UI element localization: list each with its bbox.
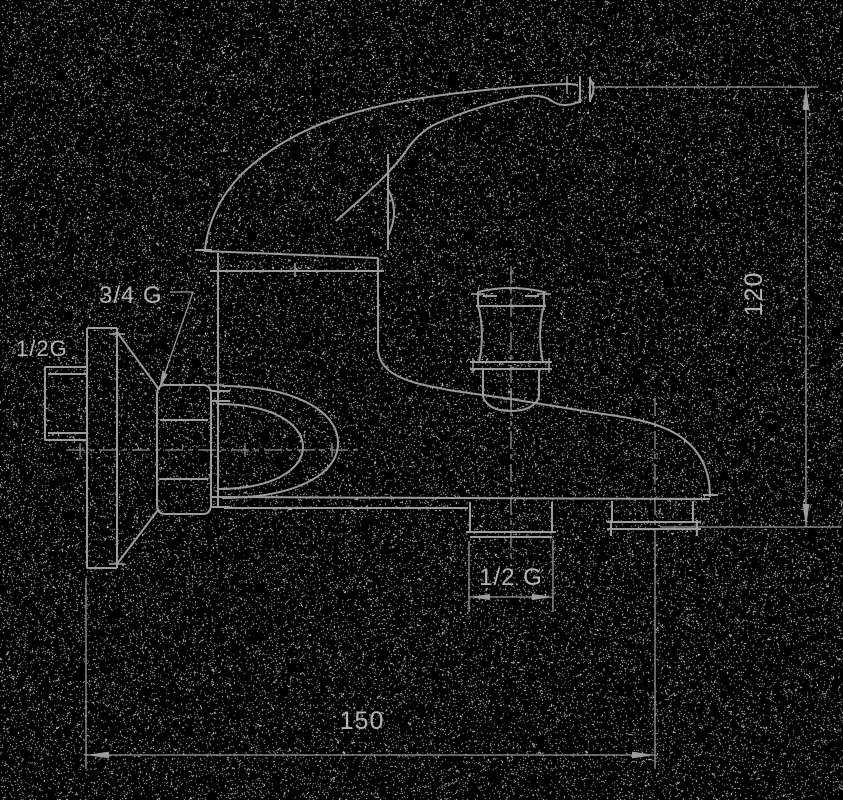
dim-text-120: 120	[740, 272, 768, 317]
dimension-150	[86, 545, 655, 769]
spout-right-bend	[590, 412, 710, 497]
leader-arrowhead	[159, 372, 168, 390]
arrowhead-down	[803, 504, 810, 527]
faucet-technical-drawing: 3/4 G 1/2G 1/2 G 150 120	[0, 0, 843, 800]
arrowhead-up	[803, 87, 810, 110]
reference-ticks	[109, 76, 567, 564]
arrowhead-left	[469, 594, 490, 600]
handle-tip	[580, 76, 594, 103]
body-right-shoulder	[378, 258, 448, 390]
spout-bottom-edge	[210, 497, 710, 499]
dimension-120	[593, 87, 841, 527]
label-left-inlet-thread: 1/2G	[16, 336, 68, 361]
handle-skirt-edge	[336, 151, 406, 221]
arrowhead-right	[632, 752, 655, 759]
dim-text-150: 150	[340, 707, 385, 735]
leader-three-quarter	[159, 292, 193, 390]
lever-handle	[205, 76, 594, 250]
spout-top-edge	[448, 390, 590, 412]
label-top-inlet-thread: 3/4 G	[99, 282, 163, 309]
mixer-body	[195, 250, 448, 508]
label-outlet-thread: 1/2 G	[479, 564, 543, 591]
cap-ring-seams	[195, 250, 384, 271]
wall-bracket	[607, 495, 718, 536]
escutcheon-cone	[87, 328, 158, 568]
arrowhead-right	[532, 594, 553, 600]
arrowhead-left	[86, 752, 109, 759]
drawing-canvas: 3/4 G 1/2G 1/2 G 150 120	[0, 0, 843, 800]
dimension-annotations	[86, 87, 841, 769]
body-end-cap-inner	[218, 404, 303, 489]
handle-bottom-edge	[406, 96, 582, 151]
wall-pipe-stub	[45, 367, 87, 440]
body-end-cap-outer	[222, 386, 338, 498]
faucet-body	[45, 76, 718, 568]
